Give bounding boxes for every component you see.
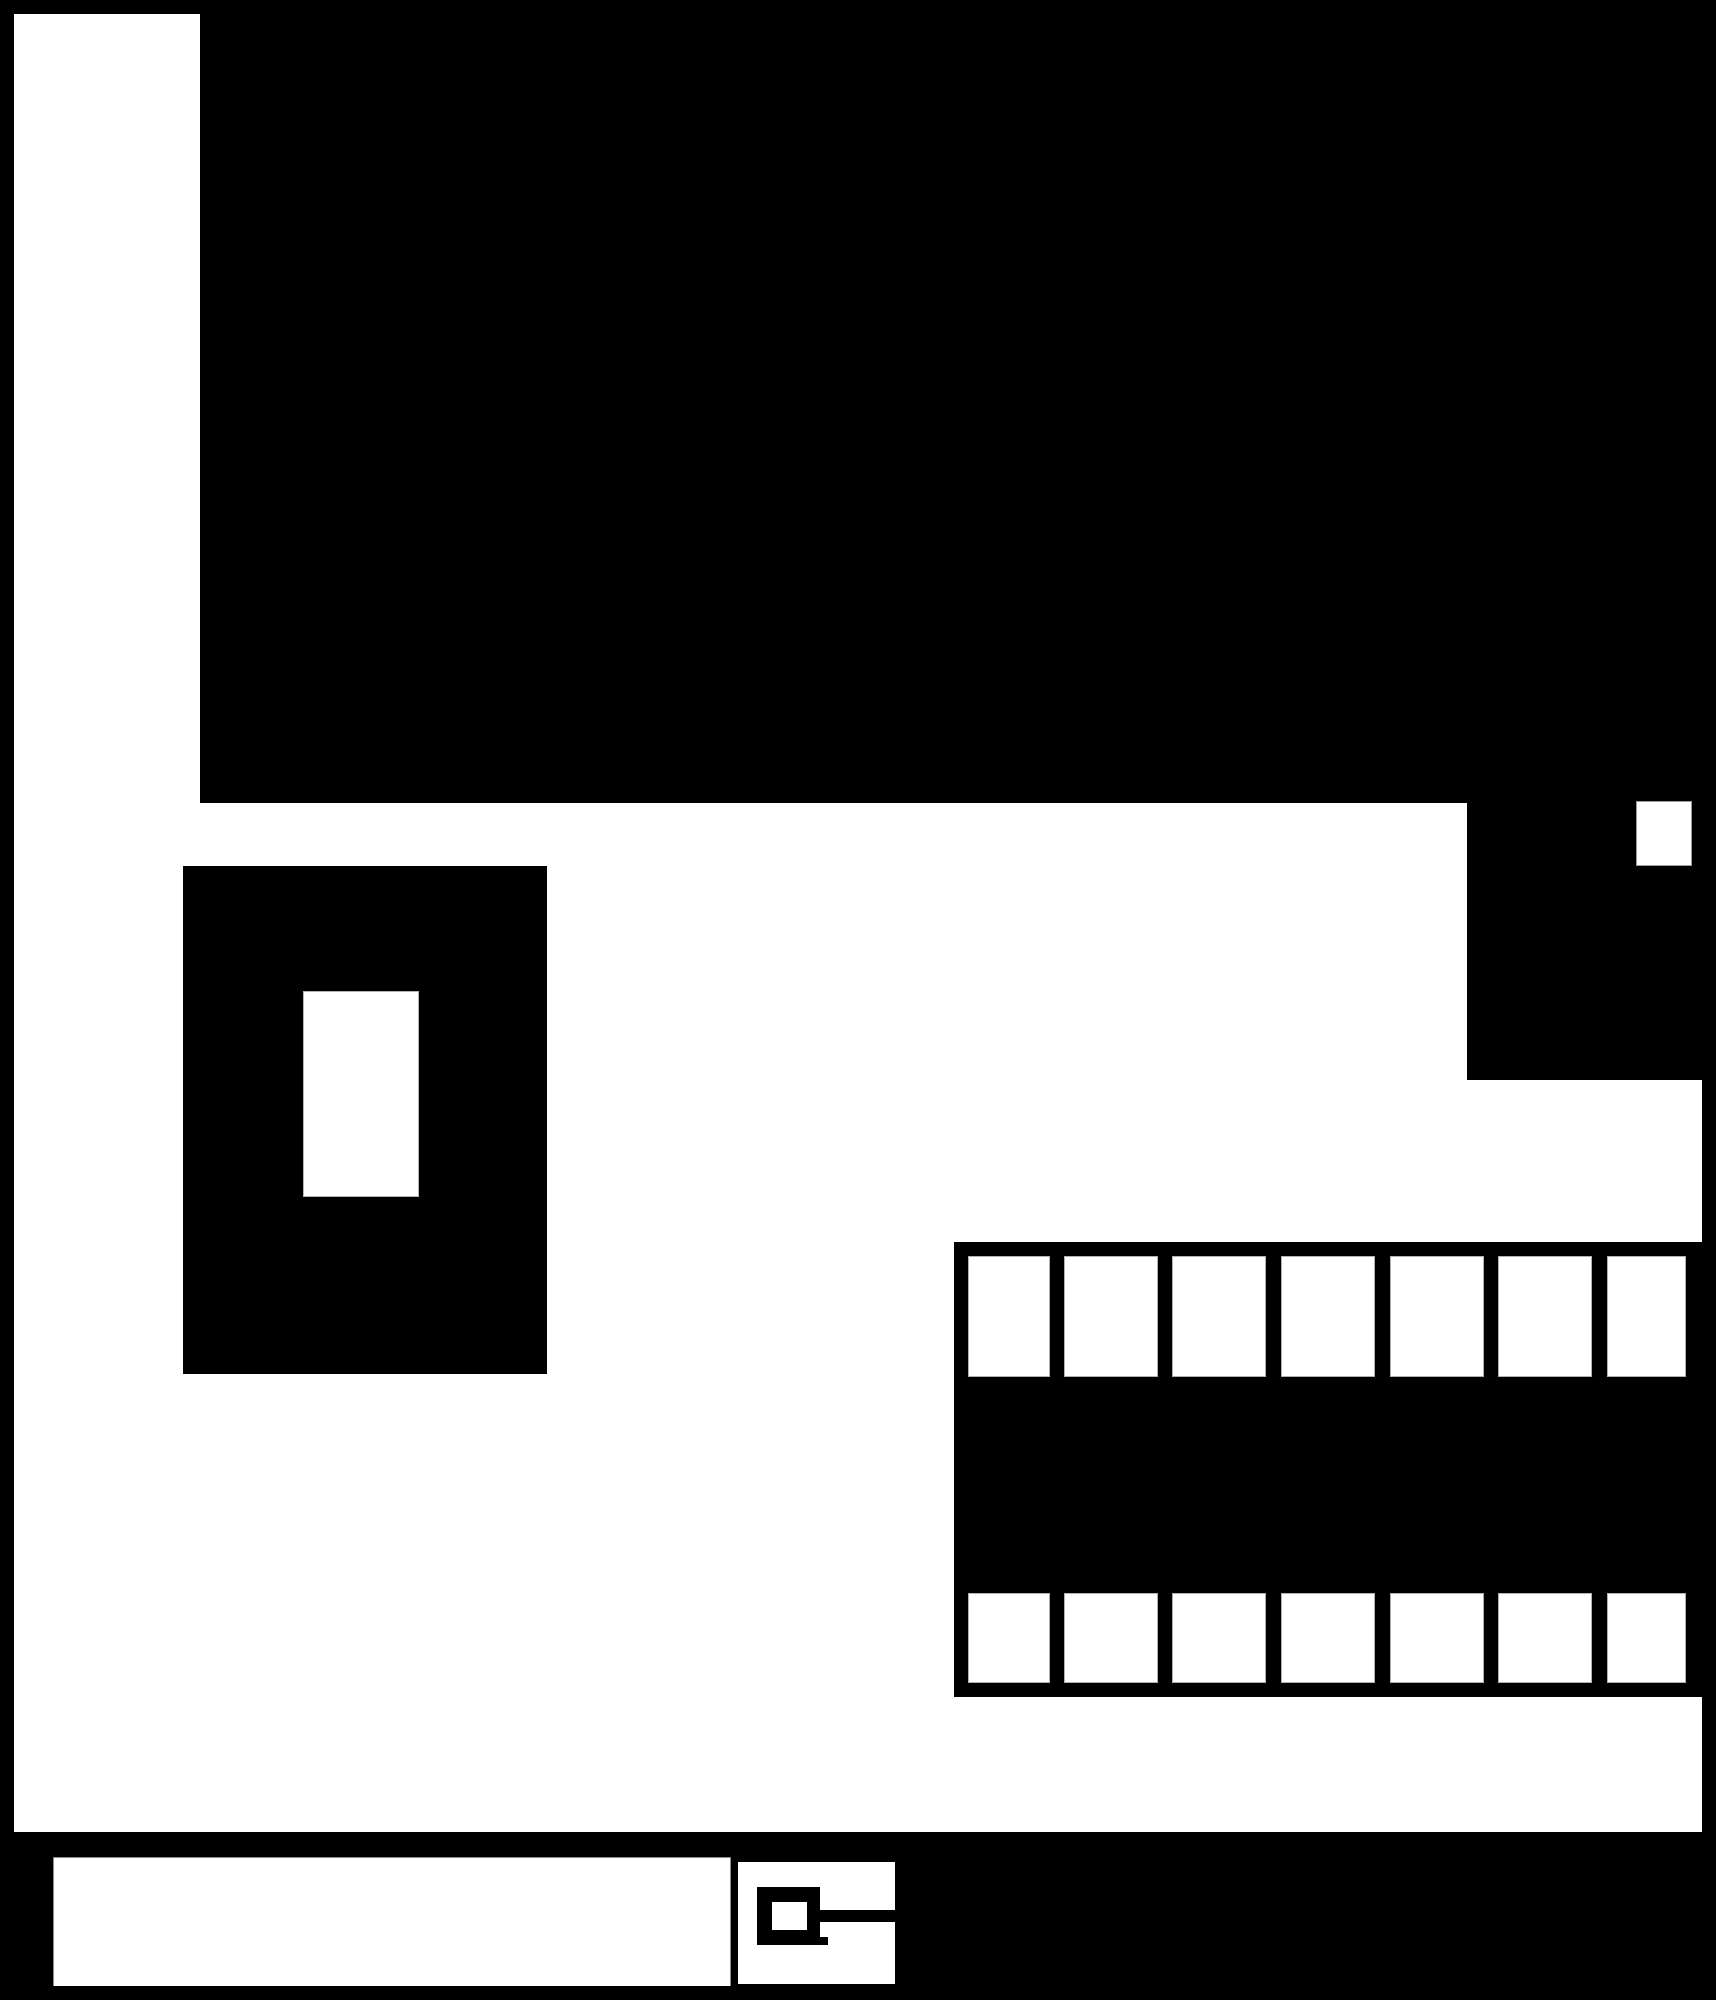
filmstrip-cell[interactable] [968,1256,1050,1377]
filmstrip-cell[interactable] [1064,1256,1158,1377]
key-icon-tooth [810,1937,828,1945]
dialog-content-area[interactable] [303,991,419,1197]
filmstrip-cell[interactable] [1281,1593,1375,1683]
filmstrip-panel [954,1242,1716,1697]
key-icon-shaft [820,1910,895,1922]
frame-top-edge [0,0,1716,14]
frame-left-edge [0,0,14,2000]
screen [0,0,1716,2000]
filmstrip-cell[interactable] [1172,1593,1266,1683]
filmstrip-cell[interactable] [1172,1256,1266,1377]
content-panel-dark [200,14,1716,803]
frame-bottom-edge [0,1986,1716,2000]
filmstrip-cell[interactable] [968,1593,1050,1683]
sidebar-panel [14,14,200,1832]
filmstrip-cell[interactable] [1498,1593,1592,1683]
filmstrip-cell[interactable] [1607,1256,1686,1377]
key-icon [738,1862,895,1984]
filmstrip-cell[interactable] [1281,1256,1375,1377]
frame-right-edge [1702,0,1716,2000]
key-icon-hole [772,1902,807,1930]
filmstrip-cell[interactable] [1607,1593,1686,1683]
filmstrip-cell[interactable] [1390,1593,1484,1683]
rail-thumbnail-tile[interactable] [1636,801,1692,866]
key-button-panel[interactable] [738,1862,895,1984]
filmstrip-cell[interactable] [1064,1593,1158,1683]
search-input[interactable] [53,1857,731,1989]
filmstrip-cell[interactable] [1390,1256,1484,1377]
filmstrip-cell[interactable] [1498,1256,1592,1377]
